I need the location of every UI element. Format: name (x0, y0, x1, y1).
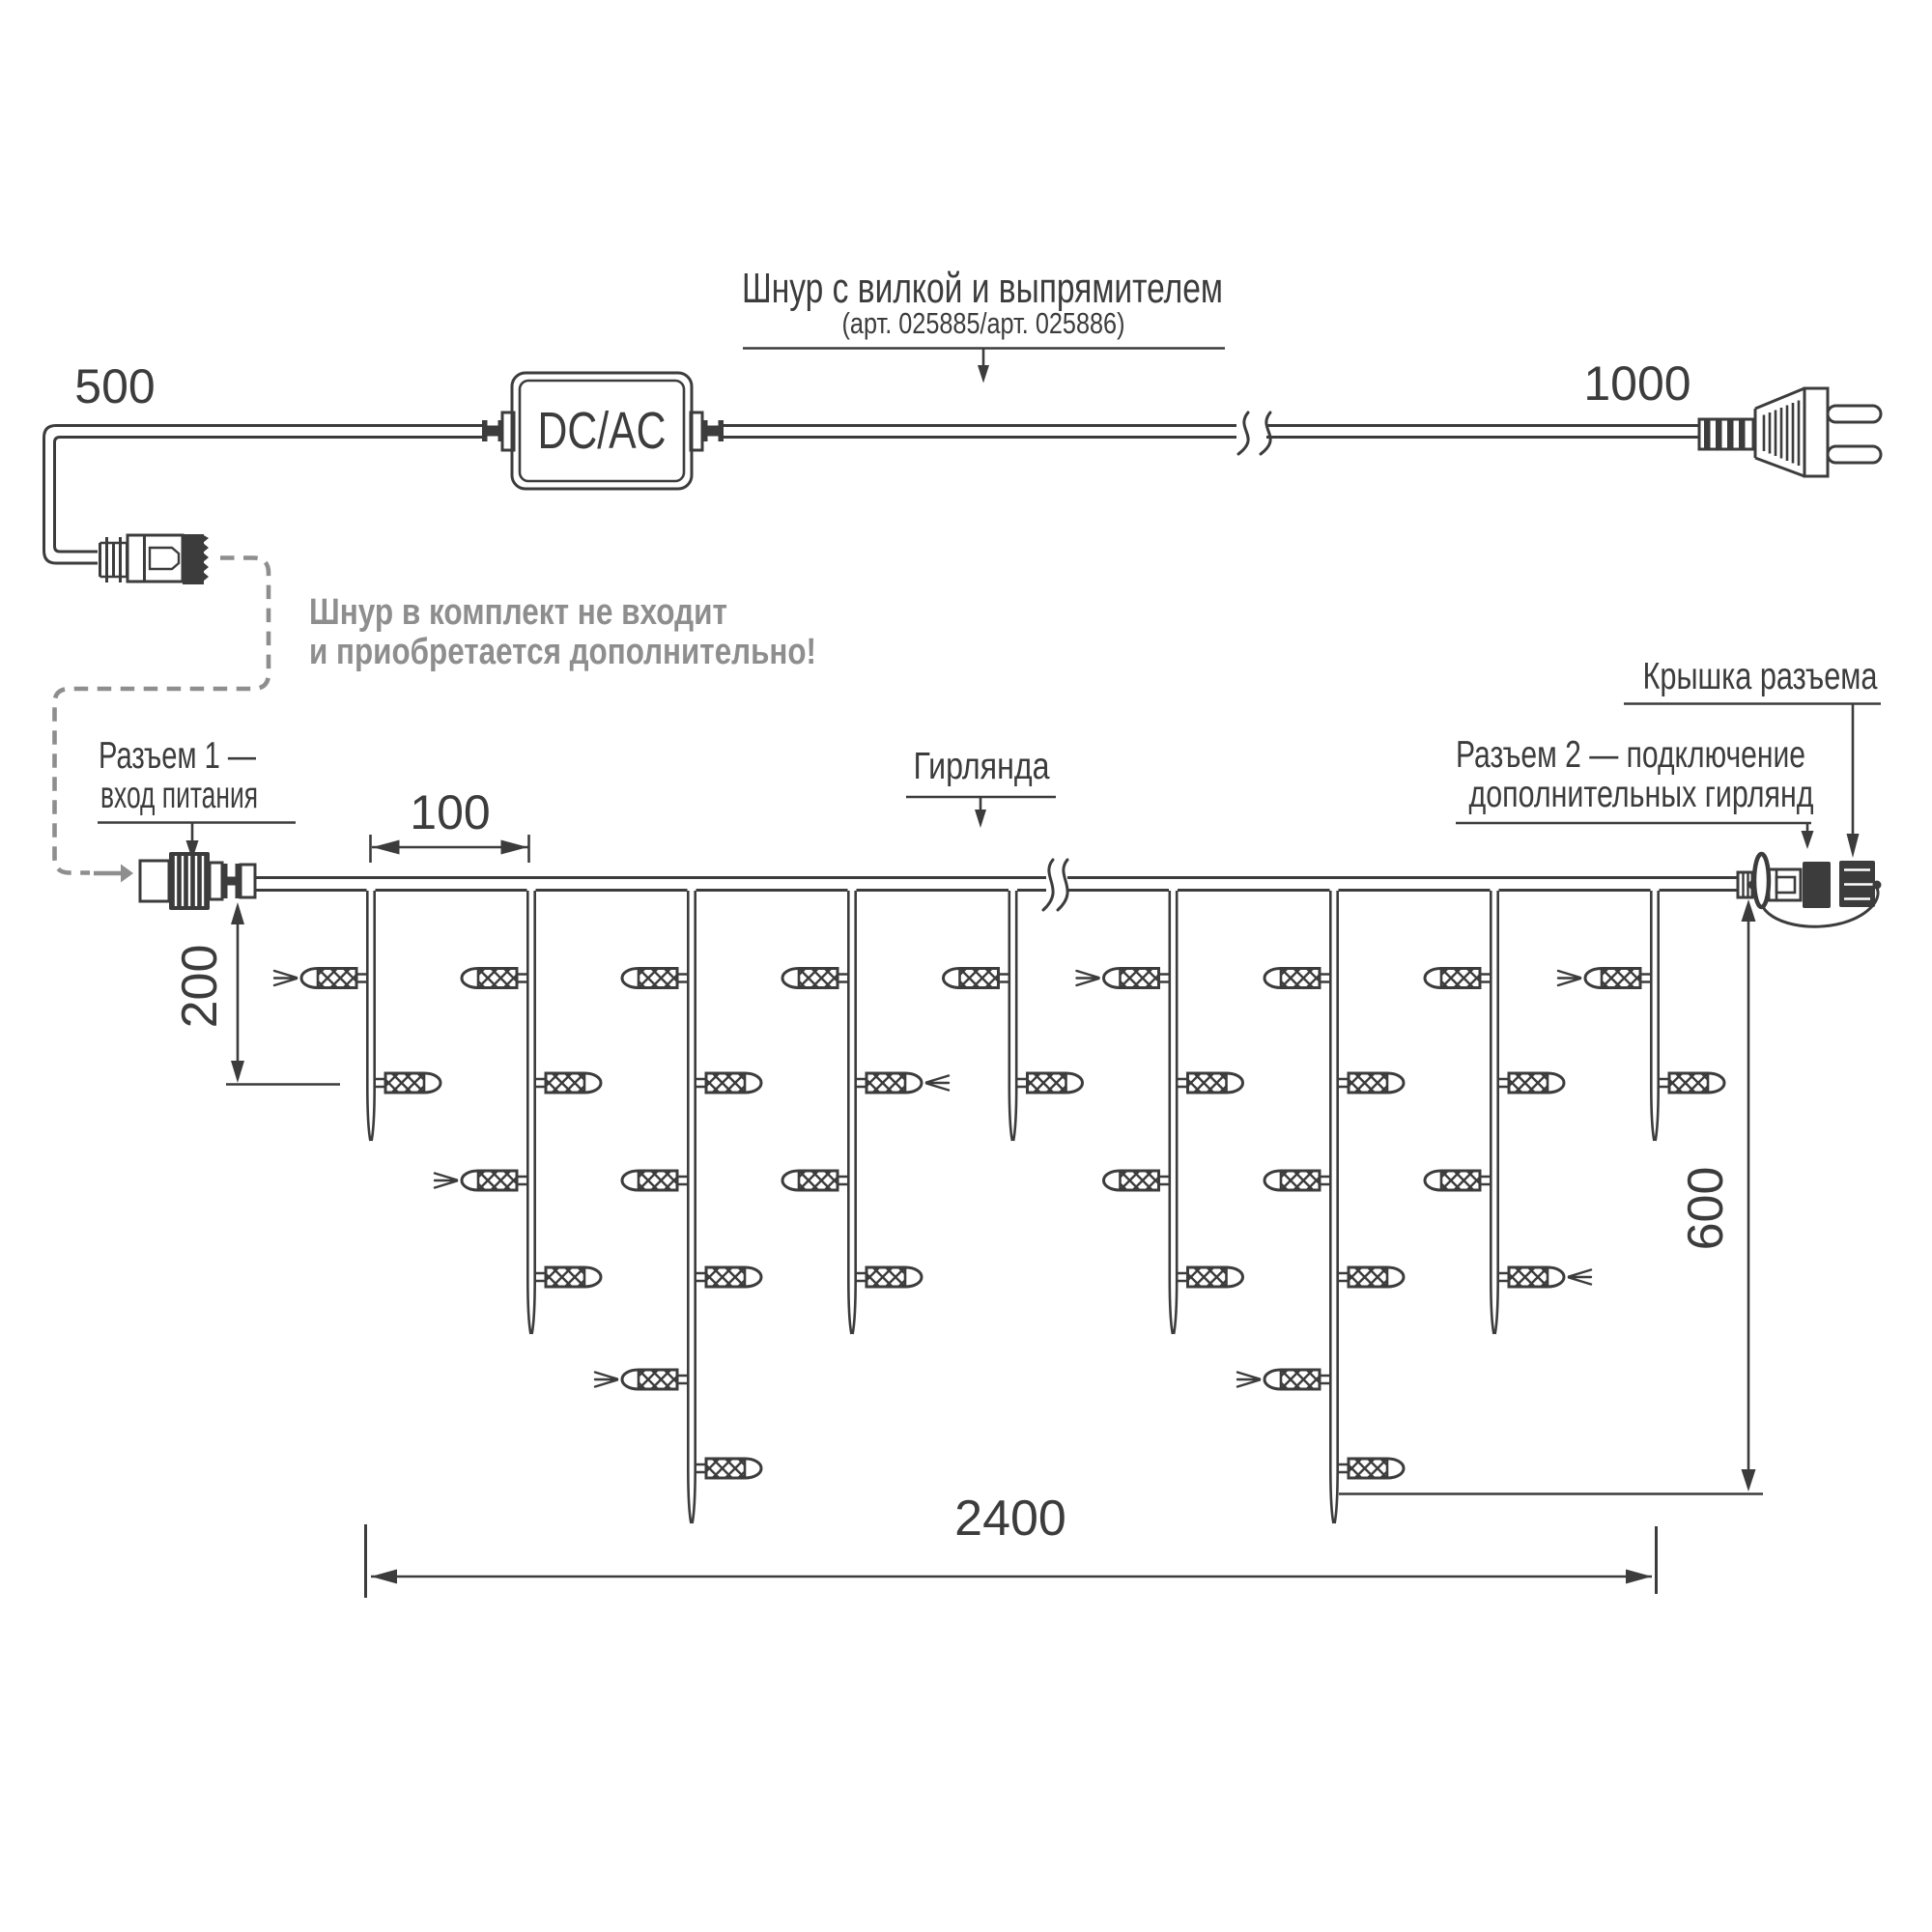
svg-text:Шнур с вилкой и выпрямителем: Шнур с вилкой и выпрямителем (742, 265, 1223, 312)
svg-text:и приобретается дополнительно!: и приобретается дополнительно! (309, 632, 816, 672)
svg-text:Крышка разъема: Крышка разъема (1643, 656, 1878, 697)
svg-text:Разъем 1 —: Разъем 1 — (99, 735, 256, 777)
svg-text:500: 500 (74, 359, 155, 413)
svg-text:DC/AC: DC/AC (538, 402, 667, 460)
svg-text:вход питания: вход питания (100, 775, 258, 816)
svg-text:(арт. 025885/арт. 025886): (арт. 025885/арт. 025886) (842, 306, 1125, 340)
svg-text:200: 200 (172, 945, 228, 1029)
svg-text:дополнительных гирлянд: дополнительных гирлянд (1469, 774, 1814, 815)
svg-text:1000: 1000 (1583, 356, 1690, 411)
svg-text:600: 600 (1678, 1167, 1734, 1251)
svg-text:2400: 2400 (954, 1491, 1066, 1547)
svg-text:Гирлянда: Гирлянда (914, 746, 1050, 787)
svg-text:Разъем 2 — подключение: Разъем 2 — подключение (1456, 734, 1805, 776)
svg-text:Шнур в комплект не входит: Шнур в комплект не входит (309, 592, 727, 633)
svg-text:100: 100 (410, 785, 490, 839)
